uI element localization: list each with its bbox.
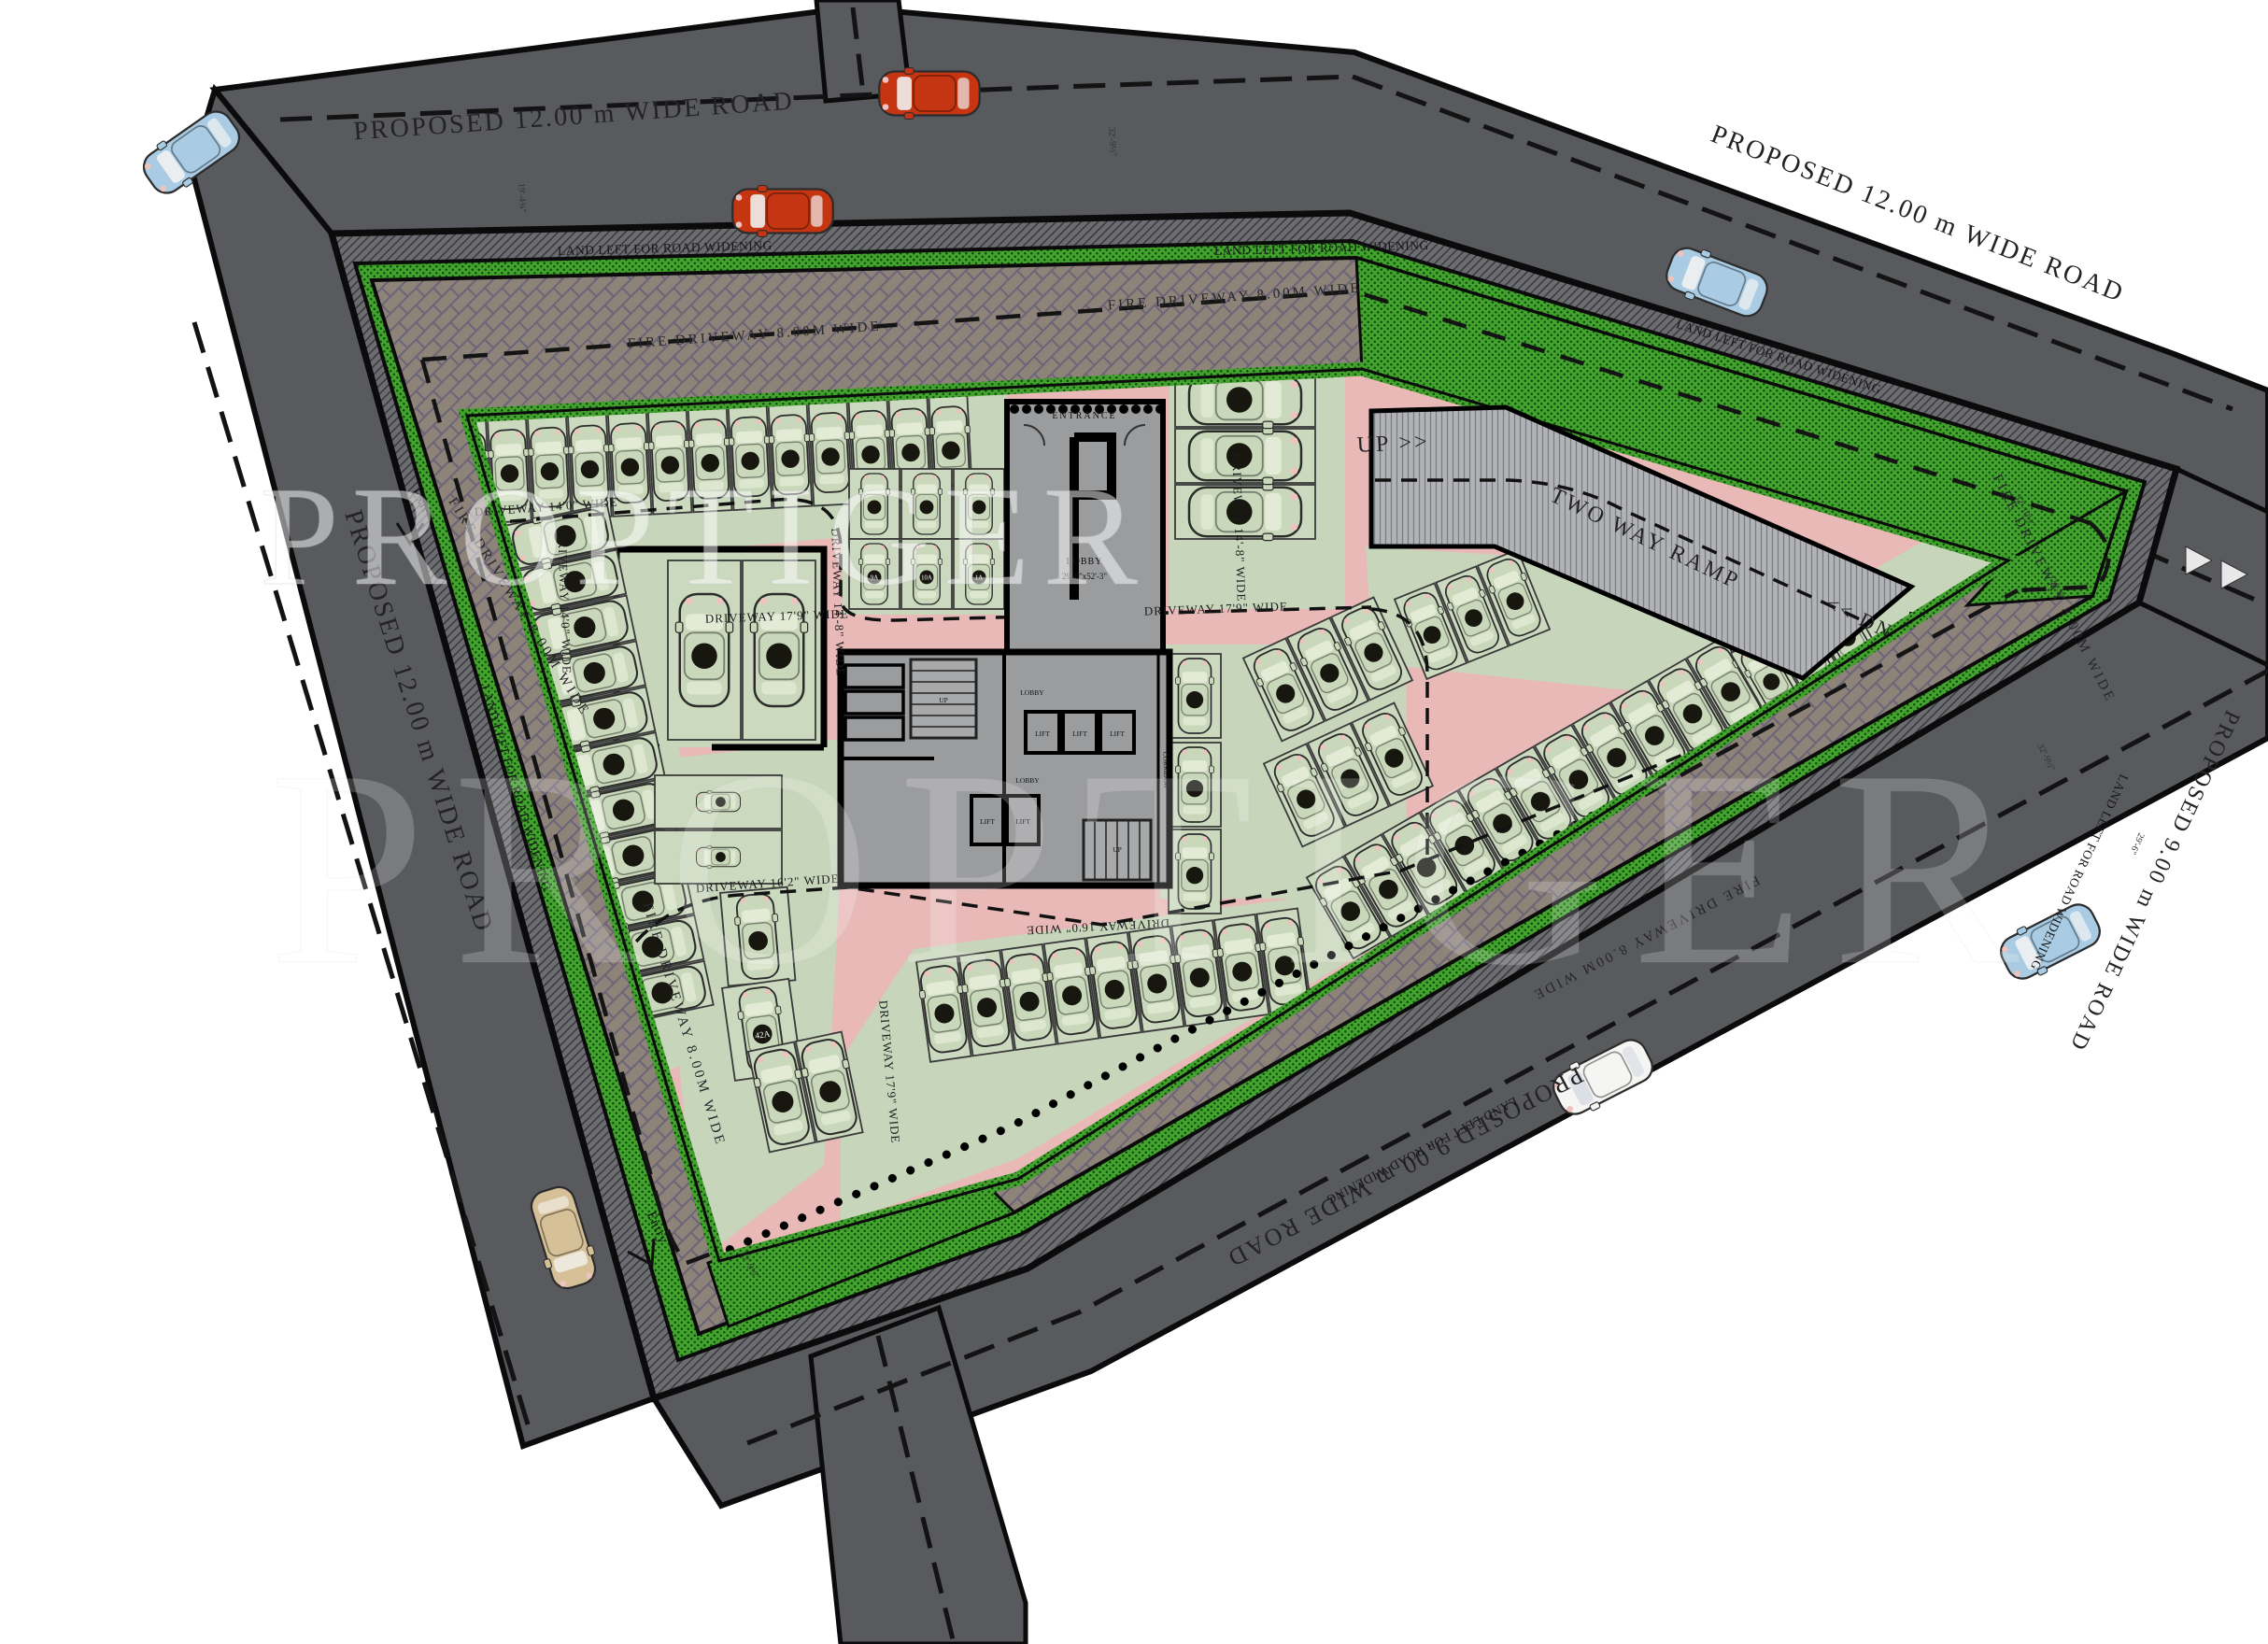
core-label: LOBBY	[1020, 688, 1044, 697]
watermark: PROPTIGER	[260, 458, 1151, 615]
ramp-label: UP >>	[1356, 430, 1430, 458]
entrance-label: ENTRANCE	[1052, 411, 1116, 421]
car	[879, 68, 980, 120]
dimension-label: 29'-6"	[2127, 831, 2146, 857]
road-vehicle	[732, 186, 833, 237]
stall-badge	[1186, 691, 1203, 708]
road-vehicle	[879, 68, 980, 120]
site-plan: 9A10A1A42A	[0, 0, 2268, 1644]
watermark: PROPTIGER	[269, 713, 2048, 1023]
stall-badge	[766, 644, 792, 670]
dimension-label: 32'-9½"	[1106, 127, 1118, 157]
dimension-label: 19'-4¾"	[516, 183, 528, 213]
site-plan-svg: 9A10A1A42A	[0, 0, 2268, 1644]
core-label: UP	[939, 696, 948, 704]
car	[732, 186, 833, 237]
stall-badge	[691, 644, 717, 670]
stall-badge	[1226, 387, 1253, 413]
